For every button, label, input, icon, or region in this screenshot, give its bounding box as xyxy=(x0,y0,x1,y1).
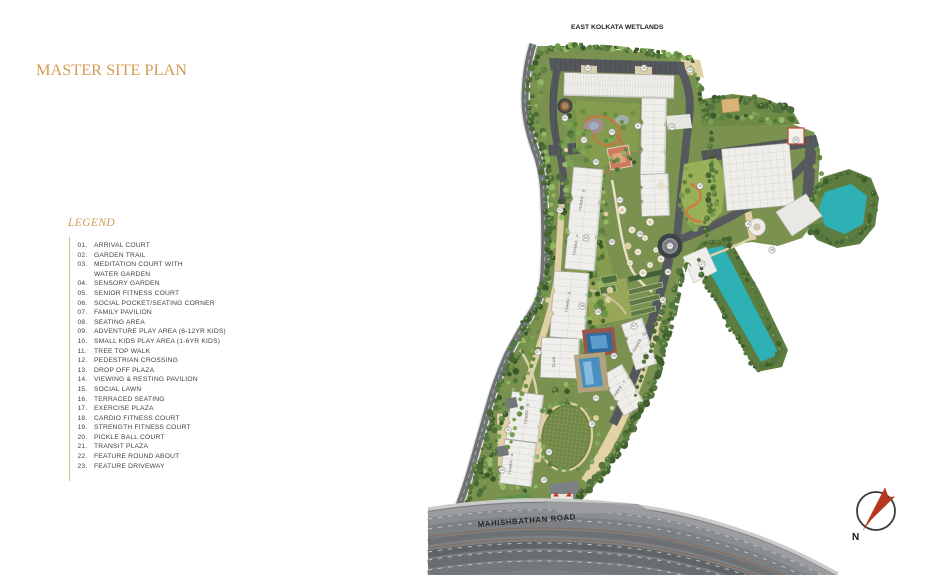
svg-text:15: 15 xyxy=(698,184,702,188)
svg-text:04: 04 xyxy=(584,236,588,240)
svg-text:N: N xyxy=(852,532,859,543)
svg-text:20: 20 xyxy=(500,468,504,472)
svg-text:07: 07 xyxy=(536,350,540,354)
svg-text:06: 06 xyxy=(666,270,670,274)
svg-text:18: 18 xyxy=(770,248,774,252)
svg-text:02: 02 xyxy=(547,450,551,454)
svg-text:EAST KOLKATA WETLANDS: EAST KOLKATA WETLANDS xyxy=(571,24,664,31)
svg-text:08: 08 xyxy=(612,354,616,358)
svg-text:23: 23 xyxy=(688,68,692,72)
svg-text:16: 16 xyxy=(661,298,665,302)
svg-text:06: 06 xyxy=(638,232,642,236)
svg-text:10: 10 xyxy=(582,138,586,142)
svg-text:15: 15 xyxy=(590,422,594,426)
svg-text:03: 03 xyxy=(594,396,598,400)
svg-text:19: 19 xyxy=(542,478,546,482)
svg-text:05: 05 xyxy=(610,240,614,244)
svg-text:09: 09 xyxy=(610,130,614,134)
svg-text:17: 17 xyxy=(700,262,704,266)
svg-text:08: 08 xyxy=(594,160,598,164)
svg-text:07: 07 xyxy=(632,324,636,328)
svg-text:20: 20 xyxy=(794,138,798,142)
svg-text:01: 01 xyxy=(563,116,567,120)
svg-text:21: 21 xyxy=(506,428,510,432)
svg-text:13: 13 xyxy=(670,125,674,129)
svg-text:12: 12 xyxy=(586,66,590,70)
svg-text:14: 14 xyxy=(746,222,750,226)
svg-text:22: 22 xyxy=(668,244,672,248)
svg-text:02: 02 xyxy=(558,208,562,212)
svg-text:11: 11 xyxy=(636,124,640,128)
svg-text:06: 06 xyxy=(580,304,584,308)
svg-text:12: 12 xyxy=(642,66,646,70)
svg-text:05: 05 xyxy=(596,310,600,314)
svg-text:CLUB: CLUB xyxy=(552,356,556,367)
svg-text:04: 04 xyxy=(618,198,622,202)
